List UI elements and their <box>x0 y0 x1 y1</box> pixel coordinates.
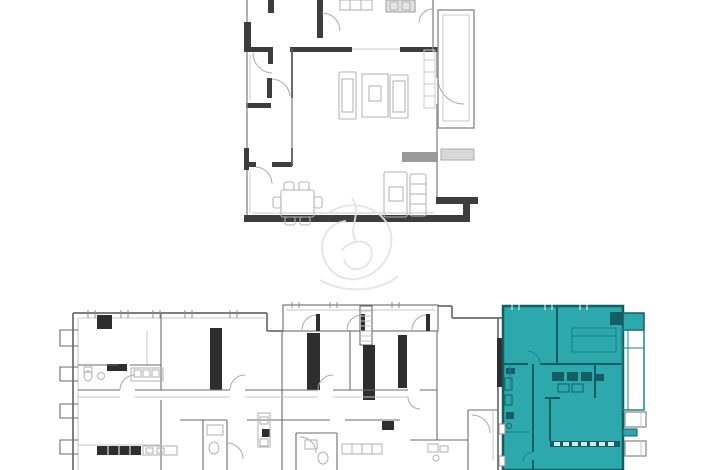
highlighted-unit[interactable] <box>499 303 646 470</box>
unit-left-opening <box>499 456 505 466</box>
floorplan-canvas <box>0 0 726 470</box>
unit-left-opening <box>499 424 505 434</box>
left-balcony-tabs <box>60 330 78 454</box>
lounge-set <box>384 172 426 217</box>
unit-balcony <box>622 313 646 456</box>
unit-kitchen-band <box>550 441 620 447</box>
living-sofa-set <box>339 72 408 119</box>
brand-watermark-icon <box>320 198 398 289</box>
balcony <box>424 10 474 128</box>
coffee-table <box>369 86 381 101</box>
building-floor-plate <box>60 302 646 470</box>
wardrobe <box>340 0 372 10</box>
floorplan-screenshot <box>0 0 726 470</box>
unit-detail-plan <box>244 0 478 225</box>
unit-shaft <box>610 312 623 325</box>
stair-core <box>360 306 372 345</box>
service-slab <box>402 149 474 162</box>
kitchen-counter <box>386 0 415 12</box>
shaft-cores <box>97 315 504 437</box>
